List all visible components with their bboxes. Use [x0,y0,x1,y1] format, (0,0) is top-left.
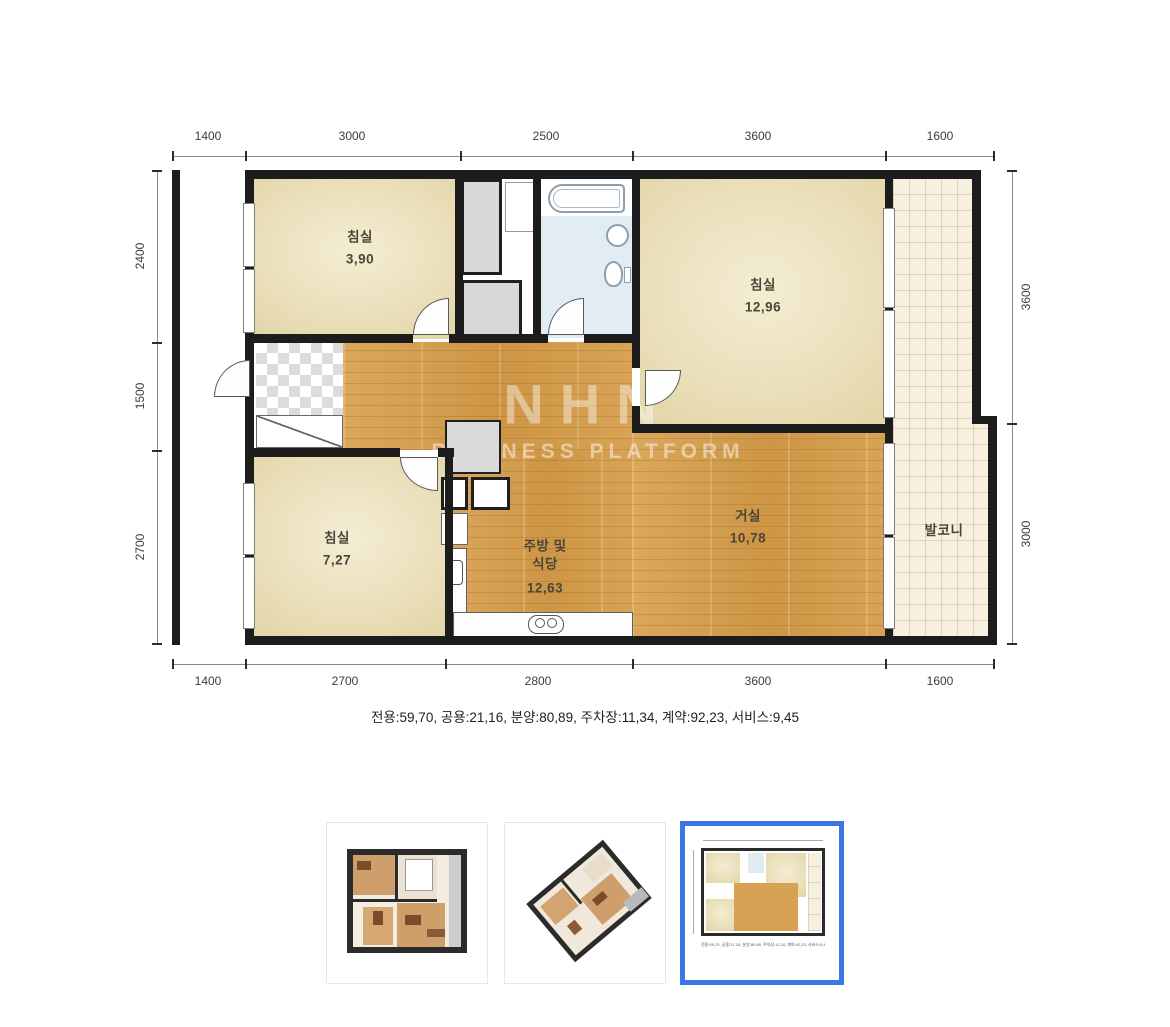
room-label-bedroom-top-left: 침실 3,90 [346,226,374,269]
wall-segment [245,334,413,343]
room-name: 주방 및 [523,538,566,556]
thumb-caption-text: 전용:59,70, 공용:21,16, 분양:80,89, 주차장:11,34,… [701,942,825,948]
thumbnail-2d-plan-view[interactable]: 전용:59,70, 공용:21,16, 분양:80,89, 주차장:11,34,… [680,821,844,985]
dimension-value: 2800 [525,674,552,688]
dimension-tick [245,151,247,161]
bathtub-icon [548,184,625,213]
window [883,310,895,418]
room-label-bedroom-bottom-left: 침실 7,27 [323,527,351,570]
thumb-room-shape [808,853,821,931]
entry-floor [256,342,343,415]
dimension-value: 3600 [1019,284,1033,311]
dimension-line-top [172,156,995,157]
wall-segment [632,170,640,368]
sink-icon [606,224,629,247]
window [243,269,255,333]
room-area: 12,96 [745,296,781,318]
thumb-room-shape [706,853,740,883]
thumbnail-strip: 전용:59,70, 공용:21,16, 분양:80,89, 주차장:11,34,… [0,822,1170,984]
fridge [445,420,501,474]
dimension-value: 2500 [533,129,560,143]
thumb-plan-shape [347,849,467,953]
toilet-tank [624,267,631,283]
window [883,537,895,629]
dimension-tick [152,643,162,645]
thumbnail-3d-top-view[interactable] [326,822,488,984]
thumb-room-shape [405,859,433,891]
dimension-value: 1500 [133,383,147,410]
dimension-value: 3600 [745,129,772,143]
shoe-closet [256,415,343,448]
room-name: 거실 [730,505,766,527]
room-name: 발코니 [925,520,964,542]
room-area: 3,90 [346,248,374,270]
dimension-value: 3000 [339,129,366,143]
room-name: 침실 [323,527,351,549]
room-area: 12,63 [523,580,566,598]
toilet-icon [604,261,623,287]
stove-burner [535,618,545,628]
entry-door-arc [214,360,250,397]
dimension-tick [460,151,462,161]
storage-box [461,280,522,338]
dimension-line-bottom [172,664,995,665]
dimension-tick [152,342,162,344]
dimension-value: 2400 [133,243,147,270]
thumb-dim-line [703,840,823,841]
dimension-value: 3000 [1019,521,1033,548]
dimension-tick [1007,423,1017,425]
thumb-dim-line [693,850,694,934]
dimension-tick [172,151,174,161]
thumb-room-shape [734,883,798,931]
thumb-furniture-shape [373,911,383,925]
window [883,208,895,308]
closet-box [461,179,502,275]
dimension-tick [245,659,247,669]
wall-segment [445,448,453,645]
dimension-value: 3600 [745,674,772,688]
thumb-room-shape [748,853,764,873]
dimension-line-right [1012,170,1013,645]
thumb-furniture-shape [357,861,371,870]
window [243,203,255,267]
dimension-value: 1400 [195,129,222,143]
thumb-plan-shape [701,848,825,936]
thumb-wall-shape [353,899,437,902]
room-area: 10,78 [730,527,766,549]
room-label-living: 거실 10,78 [730,505,766,548]
wall-segment [455,170,463,342]
stove-icon [528,615,564,634]
dimension-value: 1600 [927,129,954,143]
closet-box [505,182,534,232]
floor-plan-page: NHN BUSINESS PLATFORM [0,0,1170,1027]
thumb-room-shape [706,899,736,931]
thumb-plan-shape [526,840,651,962]
dimension-tick [1007,643,1017,645]
dimension-tick [885,659,887,669]
window [243,483,255,555]
bathtub-inner [553,189,620,208]
room-name: 침실 [346,226,374,248]
dimension-tick [152,170,162,172]
window [243,557,255,629]
area-summary-text: 전용:59,70, 공용:21,16, 분양:80,89, 주차장:11,34,… [130,706,1040,726]
room-area: 7,27 [323,549,351,571]
dimension-tick [445,659,447,669]
dimension-tick [172,659,174,669]
dimension-tick [632,151,634,161]
room-label-bedroom-top-right: 침실 12,96 [745,274,781,317]
thumb-room-shape [397,903,445,947]
dimension-line-left [157,170,158,645]
room-label-balcony: 발코니 [925,520,964,542]
thumb-wall-shape [395,855,398,899]
kitchen-cabinet [471,477,510,510]
balcony-upper-floor [893,179,973,419]
wall-segment [449,334,548,343]
wall-segment [972,170,981,424]
dimension-value: 2700 [332,674,359,688]
thumbnail-3d-isometric-view[interactable] [504,822,666,984]
dimension-tick [632,659,634,669]
room-label-kitchen: 주방 및 식당 12,63 [523,538,566,599]
thumb-furniture-shape [427,929,445,937]
dimension-value: 1400 [195,674,222,688]
wall-exterior-left [172,170,180,645]
dimension-tick [1007,170,1017,172]
wall-segment [988,416,997,645]
dimension-tick [885,151,887,161]
wall-segment [533,179,541,338]
room-name: 식당 [523,556,566,574]
room-name: 침실 [745,274,781,296]
floor-plan-image: NHN BUSINESS PLATFORM [0,0,1170,780]
dimension-tick [152,450,162,452]
window [883,443,895,535]
dimension-value: 1600 [927,674,954,688]
wall-segment [245,170,981,179]
thumb-furniture-shape [567,920,582,936]
wall-segment [632,424,893,433]
dimension-tick [993,659,995,669]
thumb-furniture-shape [405,915,421,925]
dimension-tick [993,151,995,161]
dimension-value: 2700 [133,534,147,561]
thumb-room-shape [449,855,461,947]
stove-burner [547,618,557,628]
wall-segment [245,448,400,457]
